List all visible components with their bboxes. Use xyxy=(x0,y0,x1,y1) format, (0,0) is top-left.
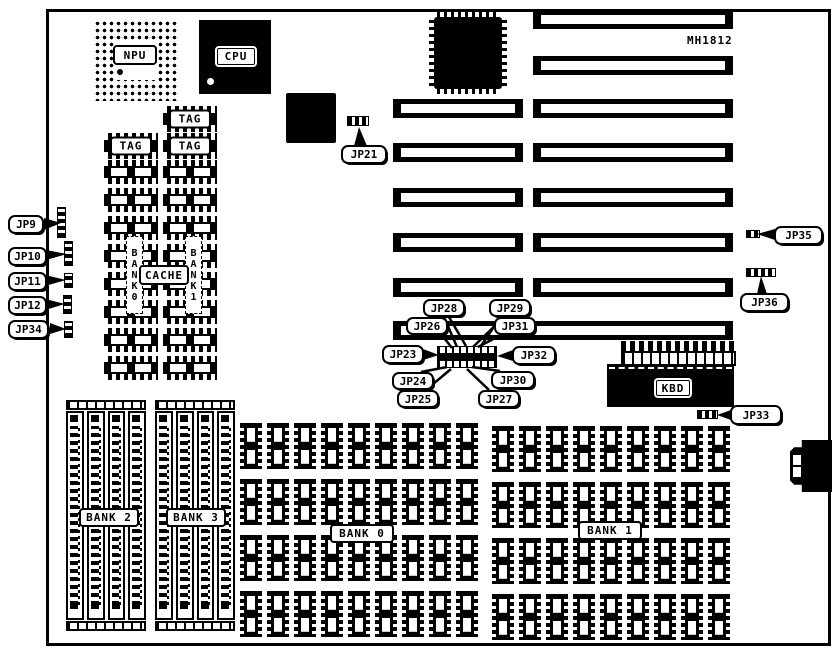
jp35-jumper xyxy=(746,230,760,238)
jp27-label: JP27 xyxy=(478,390,520,408)
dram-chip xyxy=(573,538,595,584)
cache-chip xyxy=(163,160,217,184)
dram-chip xyxy=(546,426,568,472)
tag-chip-1: TAG xyxy=(163,106,217,132)
jp33-jumper xyxy=(697,410,718,419)
jp31-label: JP31 xyxy=(494,317,536,335)
jp9-jumper xyxy=(57,207,66,238)
isa-slot-segment xyxy=(393,188,523,207)
jumper-cluster-jp23-jp32 xyxy=(437,346,497,368)
jp12-jumper xyxy=(63,295,72,314)
jp23-label: JP23 xyxy=(382,345,424,364)
dram-chip xyxy=(294,591,316,637)
dram-chip xyxy=(492,426,514,472)
dram-chip xyxy=(321,479,343,525)
dram-chip xyxy=(546,594,568,640)
dram-chip xyxy=(267,591,289,637)
dram-chip xyxy=(240,591,262,637)
npu-label: NPU xyxy=(113,45,157,65)
tag-chip-2: TAG xyxy=(104,133,158,159)
dram-chip xyxy=(456,591,478,637)
jp28-label: JP28 xyxy=(423,299,465,317)
dram-chip xyxy=(654,538,676,584)
dram-chip xyxy=(519,426,541,472)
dram-chip xyxy=(402,479,424,525)
dram-chip xyxy=(456,535,478,581)
isa-slot-segment xyxy=(533,143,733,162)
bank0-label: BANK 0 xyxy=(330,524,394,543)
dram-chip xyxy=(681,594,703,640)
dram-chip xyxy=(627,538,649,584)
pin-row xyxy=(155,400,235,410)
dram-chip xyxy=(240,535,262,581)
dram-chip xyxy=(402,591,424,637)
dram-chip xyxy=(627,594,649,640)
jp11-label: JP11 xyxy=(8,272,47,291)
dram-chip xyxy=(456,479,478,525)
dram-chip xyxy=(573,426,595,472)
dram-chip xyxy=(429,591,451,637)
isa-slot-segment xyxy=(393,233,523,252)
dram-chip xyxy=(267,423,289,469)
jp10-jumper xyxy=(64,241,73,266)
tag1-label: TAG xyxy=(169,110,211,129)
jp24-label: JP24 xyxy=(392,372,434,390)
dram-chip xyxy=(375,591,397,637)
cache-chip xyxy=(163,328,217,352)
dram-chip xyxy=(681,538,703,584)
cache-chip xyxy=(104,356,158,380)
pin-row xyxy=(621,341,736,353)
dram-chip xyxy=(519,594,541,640)
isa-slot-segment xyxy=(533,188,733,207)
dram-chip xyxy=(429,479,451,525)
dram-chip xyxy=(573,594,595,640)
dram-chip xyxy=(492,538,514,584)
dram-chip xyxy=(681,426,703,472)
jp12-label: JP12 xyxy=(8,296,47,315)
kbd-pin-header xyxy=(621,341,736,366)
jp10-label: JP10 xyxy=(8,247,47,266)
tag-chip-3: TAG xyxy=(163,133,217,159)
dram-chip xyxy=(348,423,370,469)
jp25-label: JP25 xyxy=(397,390,439,408)
jp36-jumper xyxy=(746,268,776,277)
jp32-label: JP32 xyxy=(512,346,556,365)
dram-chip xyxy=(708,594,730,640)
cache-chip xyxy=(163,356,217,380)
jp36-label: JP36 xyxy=(740,293,789,312)
dram-chip xyxy=(429,423,451,469)
jp9-label: JP9 xyxy=(8,215,44,234)
tag3-label: TAG xyxy=(169,137,211,156)
cpu-label: CPU xyxy=(217,48,255,65)
dram-chip xyxy=(708,538,730,584)
dram-chip xyxy=(294,423,316,469)
dram-chip xyxy=(708,482,730,528)
dram-chip xyxy=(267,535,289,581)
jp21-label: JP21 xyxy=(341,145,387,164)
dram-chip xyxy=(708,426,730,472)
tag2-label: TAG xyxy=(110,137,152,156)
jp21-jumper xyxy=(347,116,369,126)
dram-chip xyxy=(240,423,262,469)
dram-chip xyxy=(375,479,397,525)
cache-chip xyxy=(163,188,217,212)
dram-chip xyxy=(375,423,397,469)
dram-chip xyxy=(600,426,622,472)
cache-chip xyxy=(104,328,158,352)
pin-row xyxy=(66,400,146,410)
bank2-label: BANK 2 xyxy=(79,508,139,527)
dram-chip xyxy=(240,479,262,525)
dram-chip xyxy=(627,426,649,472)
jp33-label: JP33 xyxy=(730,405,782,425)
dram-chip xyxy=(519,482,541,528)
dram-chip xyxy=(654,426,676,472)
dram-chip xyxy=(456,423,478,469)
isa-slot-segment xyxy=(533,278,733,297)
dram-chip xyxy=(654,482,676,528)
dram-chip xyxy=(600,594,622,640)
dram-chip xyxy=(681,482,703,528)
jp30-label: JP30 xyxy=(491,371,535,389)
dram-chip xyxy=(402,535,424,581)
jp29-label: JP29 xyxy=(489,299,531,317)
dram-chip xyxy=(294,535,316,581)
jp34-label: JP34 xyxy=(8,320,49,339)
dram-chip xyxy=(321,591,343,637)
dram-chip xyxy=(492,482,514,528)
dram-chip xyxy=(348,591,370,637)
dram-chip xyxy=(519,538,541,584)
dram-chip xyxy=(492,594,514,640)
isa-slot-segment xyxy=(533,99,733,118)
dram-chip xyxy=(429,535,451,581)
dram-chip xyxy=(600,538,622,584)
jp11-jumper xyxy=(64,273,73,288)
cache-chip xyxy=(104,188,158,212)
jp35-label: JP35 xyxy=(774,226,823,245)
jp34-jumper xyxy=(64,321,73,338)
bank3-label: BANK 3 xyxy=(166,508,226,527)
dram-chip xyxy=(348,479,370,525)
dram-chip xyxy=(321,423,343,469)
kbd-label: KBD xyxy=(656,380,690,396)
board-model-label: MH1812 xyxy=(687,34,733,47)
dram-chip xyxy=(402,423,424,469)
cache-label: CACHE xyxy=(139,265,189,285)
isa-slot-segment xyxy=(533,56,733,75)
motherboard-diagram: MH1812 NPU CPU TAG TAG TAG BANK0 BANK1 C… xyxy=(0,0,834,651)
dram-chip xyxy=(267,479,289,525)
dram-chip xyxy=(294,479,316,525)
isa-slot-segment xyxy=(393,143,523,162)
dram-chip xyxy=(546,538,568,584)
pin-row xyxy=(155,621,235,631)
isa-slot-segment xyxy=(393,278,523,297)
jp26-label: JP26 xyxy=(406,317,448,335)
qfp-chip xyxy=(429,12,507,94)
plcc-chip xyxy=(286,93,336,143)
isa-slot-segment xyxy=(533,233,733,252)
isa-slot-segment xyxy=(393,99,523,118)
power-connector xyxy=(790,440,832,492)
pin-row xyxy=(66,621,146,631)
bank1-label: BANK 1 xyxy=(578,521,642,540)
isa-slot-segment xyxy=(533,10,733,29)
dram-chip xyxy=(546,482,568,528)
dram-chip xyxy=(654,594,676,640)
cache-chip xyxy=(104,160,158,184)
